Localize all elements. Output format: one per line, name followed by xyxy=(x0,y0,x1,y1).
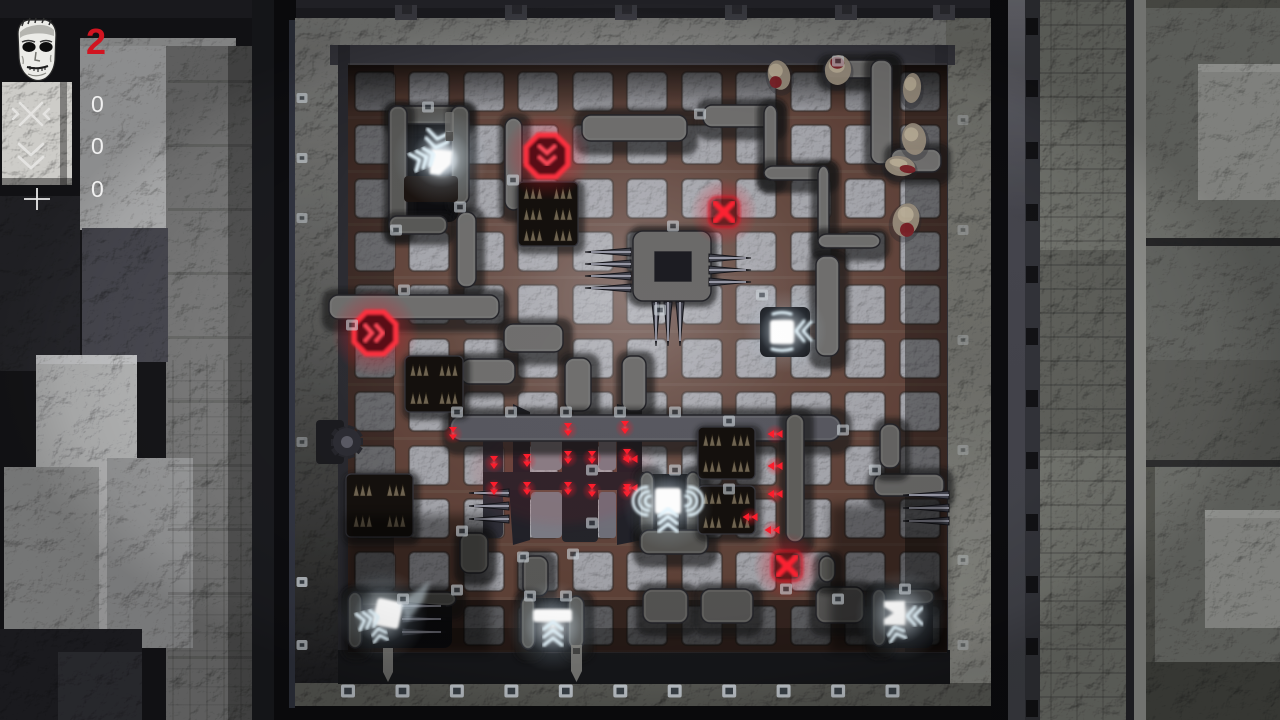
svg-text:0: 0 xyxy=(91,133,104,159)
svg-text:2: 2 xyxy=(86,21,106,62)
svg-text:0: 0 xyxy=(91,91,104,117)
svg-text:0: 0 xyxy=(91,176,104,202)
